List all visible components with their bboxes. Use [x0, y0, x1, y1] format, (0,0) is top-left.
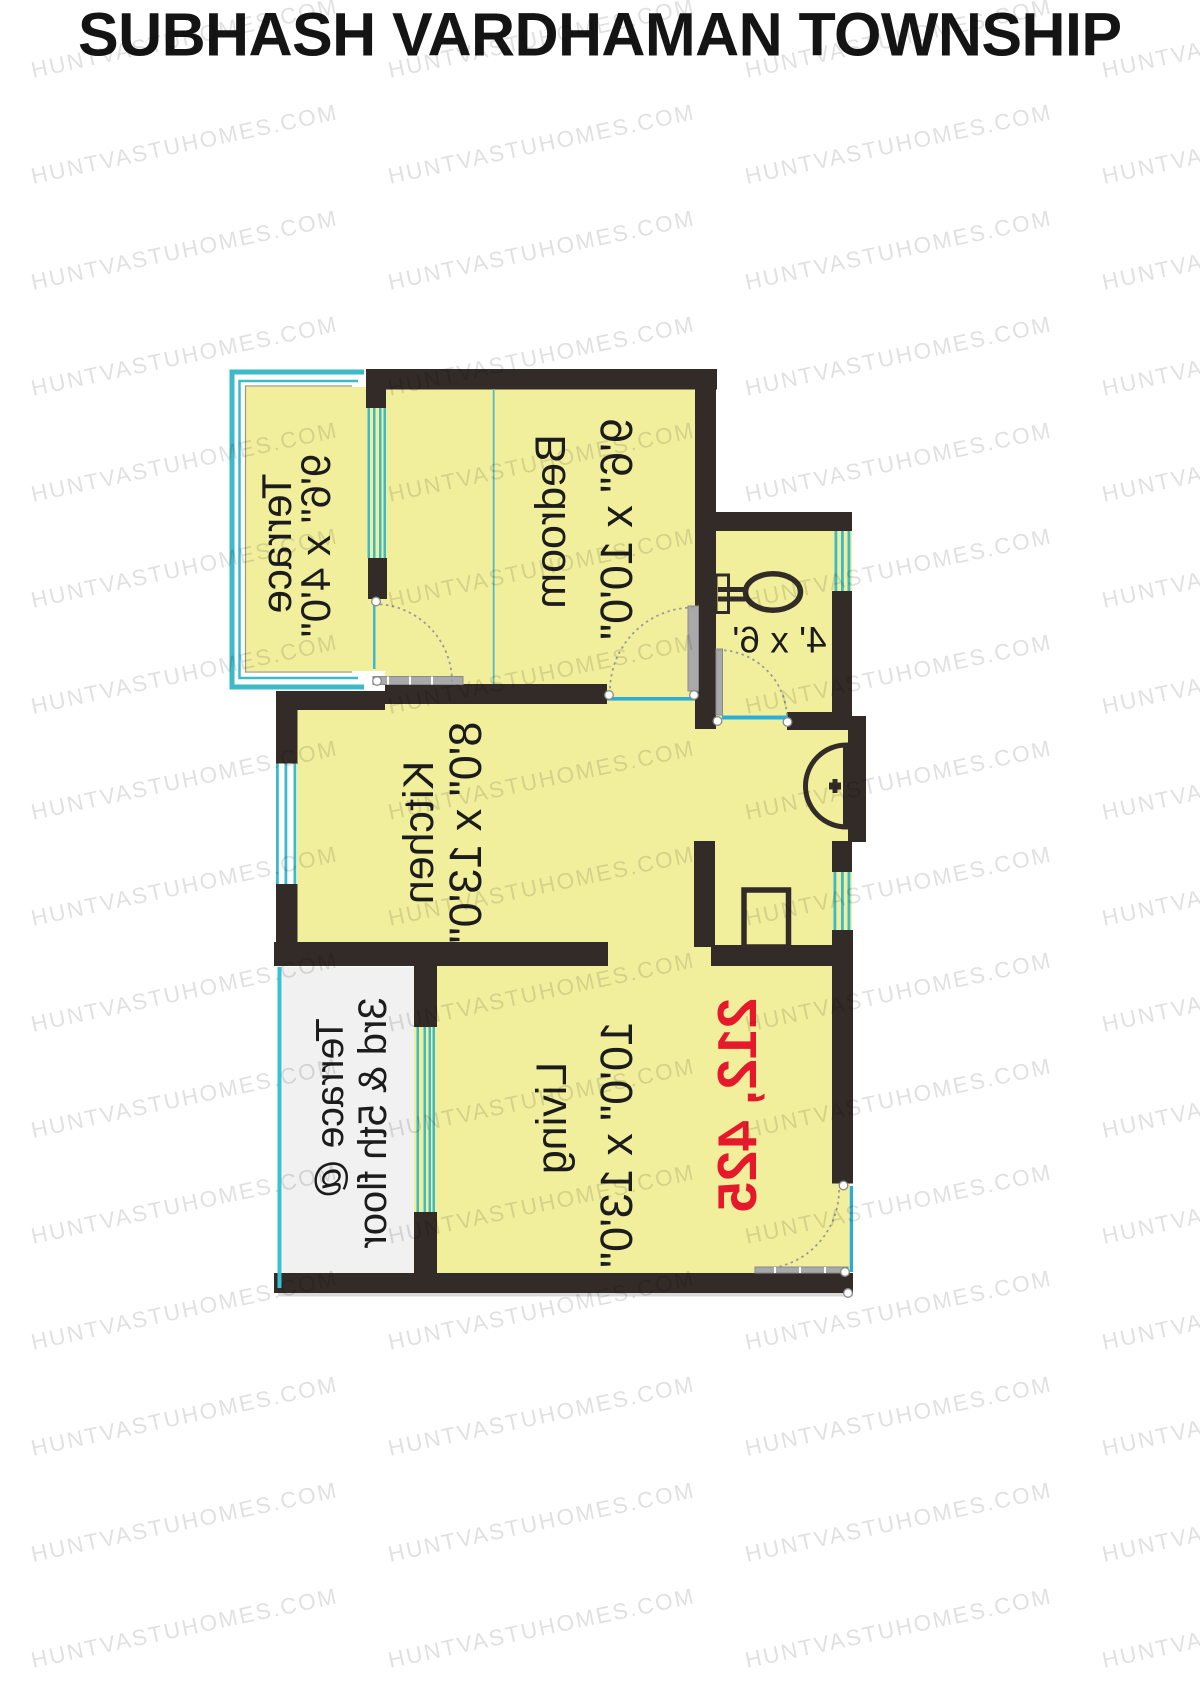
svg-text:Kitchen: Kitchen: [395, 761, 443, 904]
svg-text:HUNTVASTUHOMES.COM: HUNTVASTUHOMES.COM: [1100, 99, 1200, 189]
svg-text:HUNTVASTUHOMES.COM: HUNTVASTUHOMES.COM: [1100, 417, 1200, 507]
svg-text:HUNTVASTUHOMES.COM: HUNTVASTUHOMES.COM: [1100, 1159, 1200, 1249]
svg-text:HUNTVASTUHOMES.COM: HUNTVASTUHOMES.COM: [1100, 205, 1200, 295]
svg-text:4' x 6': 4' x 6': [732, 620, 826, 661]
svg-text:HUNTVASTUHOMES.COM: HUNTVASTUHOMES.COM: [386, 1371, 697, 1461]
svg-text:HUNTVASTUHOMES.COM: HUNTVASTUHOMES.COM: [1100, 1265, 1200, 1355]
svg-text:HUNTVASTUHOMES.COM: HUNTVASTUHOMES.COM: [386, 99, 697, 189]
svg-text:HUNTVASTUHOMES.COM: HUNTVASTUHOMES.COM: [1100, 1053, 1200, 1143]
svg-text:HUNTVASTUHOMES.COM: HUNTVASTUHOMES.COM: [1100, 311, 1200, 401]
svg-text:HUNTVASTUHOMES.COM: HUNTVASTUHOMES.COM: [1100, 841, 1200, 931]
svg-text:10'0" x 13'0": 10'0" x 13'0": [591, 1021, 642, 1268]
svg-text:HUNTVASTUHOMES.COM: HUNTVASTUHOMES.COM: [1100, 947, 1200, 1037]
svg-text:HUNTVASTUHOMES.COM: HUNTVASTUHOMES.COM: [743, 205, 1054, 295]
svg-text:HUNTVASTUHOMES.COM: HUNTVASTUHOMES.COM: [743, 417, 1054, 507]
svg-text:HUNTVASTUHOMES.COM: HUNTVASTUHOMES.COM: [743, 1583, 1054, 1673]
svg-text:HUNTVASTUHOMES.COM: HUNTVASTUHOMES.COM: [386, 1583, 697, 1673]
svg-text:HUNTVASTUHOMES.COM: HUNTVASTUHOMES.COM: [743, 99, 1054, 189]
svg-text:HUNTVASTUHOMES.COM: HUNTVASTUHOMES.COM: [1100, 523, 1200, 613]
svg-text:HUNTVASTUHOMES.COM: HUNTVASTUHOMES.COM: [743, 1371, 1054, 1461]
svg-text:HUNTVASTUHOMES.COM: HUNTVASTUHOMES.COM: [29, 99, 340, 189]
svg-text:HUNTVASTUHOMES.COM: HUNTVASTUHOMES.COM: [1100, 629, 1200, 719]
svg-text:HUNTVASTUHOMES.COM: HUNTVASTUHOMES.COM: [743, 311, 1054, 401]
svg-text:HUNTVASTUHOMES.COM: HUNTVASTUHOMES.COM: [29, 205, 340, 295]
svg-text:HUNTVASTUHOMES.COM: HUNTVASTUHOMES.COM: [29, 1265, 340, 1355]
svg-text:HUNTVASTUHOMES.COM: HUNTVASTUHOMES.COM: [743, 1477, 1054, 1567]
svg-text:HUNTVASTUHOMES.COM: HUNTVASTUHOMES.COM: [386, 1477, 697, 1567]
svg-text:HUNTVASTUHOMES.COM: HUNTVASTUHOMES.COM: [29, 1477, 340, 1567]
svg-text:HUNTVASTUHOMES.COM: HUNTVASTUHOMES.COM: [386, 205, 697, 295]
svg-text:HUNTVASTUHOMES.COM: HUNTVASTUHOMES.COM: [1100, 1583, 1200, 1673]
svg-text:HUNTVASTUHOMES.COM: HUNTVASTUHOMES.COM: [1100, 1371, 1200, 1461]
svg-text:HUNTVASTUHOMES.COM: HUNTVASTUHOMES.COM: [1100, 1477, 1200, 1567]
svg-text:HUNTVASTUHOMES.COM: HUNTVASTUHOMES.COM: [29, 1371, 340, 1461]
svg-text:HUNTVASTUHOMES.COM: HUNTVASTUHOMES.COM: [1100, 735, 1200, 825]
svg-text:HUNTVASTUHOMES.COM: HUNTVASTUHOMES.COM: [29, 1583, 340, 1673]
